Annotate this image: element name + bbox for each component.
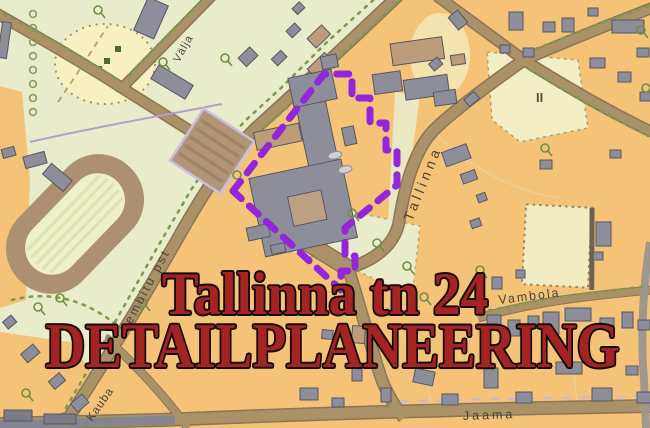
- plan-title-line2: DETAILPLANEERING: [46, 314, 605, 378]
- street-label-jaama: Jaama: [463, 407, 516, 423]
- area-marker-II: II: [536, 90, 543, 105]
- map-screenshot: Välja Tallinna Lembitu pst Vambola Kauba…: [0, 0, 650, 428]
